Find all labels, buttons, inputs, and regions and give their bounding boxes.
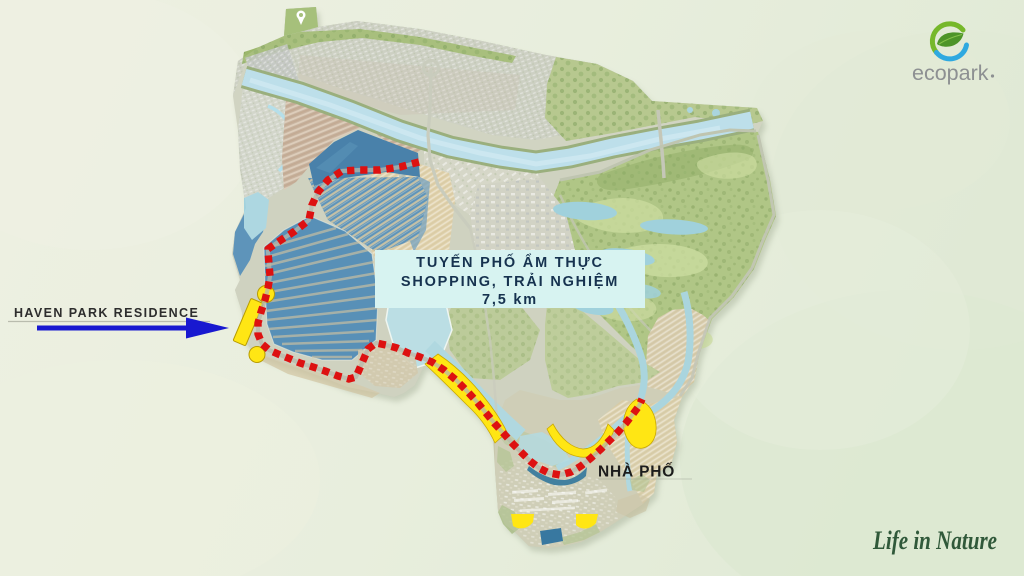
svg-text:TUYẾN PHỐ ẨM THỰC: TUYẾN PHỐ ẨM THỰC	[416, 253, 604, 271]
svg-text:SHOPPING, TRẢI NGHIỆM: SHOPPING, TRẢI NGHIỆM	[401, 272, 619, 290]
svg-text:Life in Nature: Life in Nature	[872, 526, 997, 555]
svg-text:7,5 km: 7,5 km	[482, 292, 538, 308]
svg-text:HAVEN PARK RESIDENCE: HAVEN PARK RESIDENCE	[14, 306, 199, 320]
svg-text:ecopark: ecopark	[912, 61, 989, 85]
svg-text:NHÀ PHỐ: NHÀ PHỐ	[598, 463, 675, 481]
